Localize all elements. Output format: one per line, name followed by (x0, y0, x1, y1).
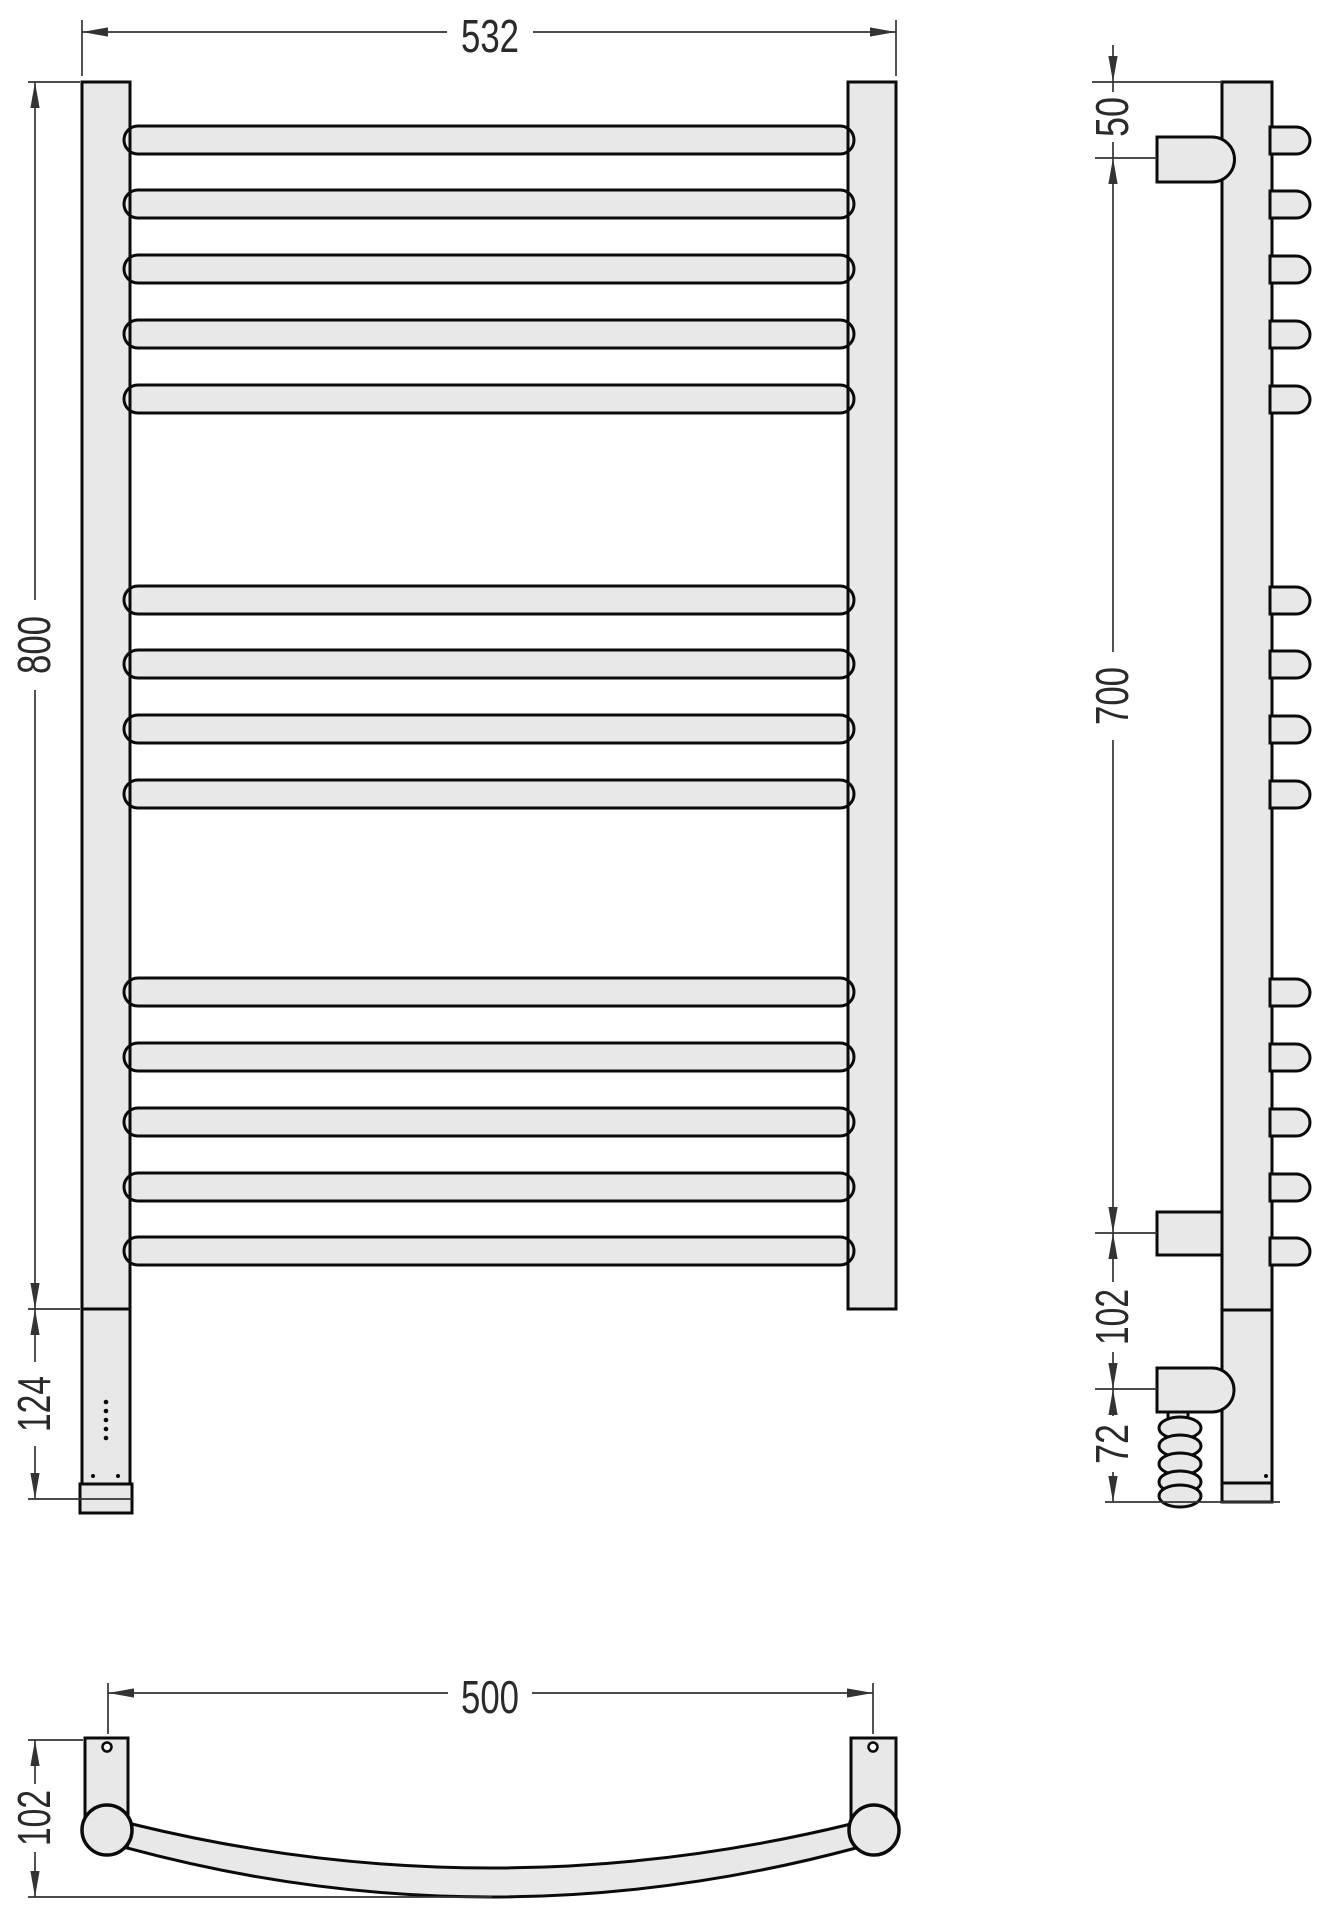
side-rung-stub (1270, 191, 1310, 218)
dimension-arrowhead (30, 1283, 39, 1309)
dimension-arrowhead (1108, 1389, 1117, 1415)
front-rung-bar (124, 780, 854, 808)
dimension-arrowhead (1108, 1207, 1117, 1233)
dimension-arrowhead (30, 1871, 39, 1897)
side-rung-stub (1270, 127, 1310, 154)
top-left-post-section (82, 1805, 132, 1855)
dim-side-lower-offset-label: 102 (1086, 1289, 1138, 1345)
dimension-arrowhead (1108, 158, 1117, 184)
dimension-arrowhead (30, 1473, 39, 1499)
front-rung-bar (124, 1043, 854, 1071)
technical-drawing-canvas: 532 800 124 50 700 102 72 500 102 (0, 0, 1337, 1920)
side-rung-stubs (1270, 127, 1310, 1265)
side-rung-stub (1270, 979, 1310, 1006)
base-dot (91, 1474, 95, 1478)
top-right-screw-hole (869, 1743, 878, 1752)
front-rungs (124, 126, 854, 1265)
dimension-arrowhead (1108, 1363, 1117, 1389)
side-view (1157, 82, 1310, 1507)
side-top-wall-bracket (1157, 137, 1235, 182)
top-right-post-section (849, 1805, 899, 1855)
vent-dot (104, 1418, 109, 1423)
side-post-bar (1222, 82, 1272, 1310)
base-dot (116, 1474, 120, 1478)
dim-side-bracket-span-label: 700 (1086, 667, 1138, 725)
top-left-screw-hole (103, 1743, 112, 1752)
top-curved-rail (127, 1824, 856, 1897)
front-rung-bar (124, 650, 854, 678)
dimension-arrowhead (1108, 1476, 1117, 1502)
side-rung-stub (1270, 1044, 1310, 1071)
vent-dot (104, 1400, 109, 1405)
cable-coil-loop (1159, 1485, 1201, 1507)
front-rung-bar (124, 255, 854, 283)
front-rung-bar (124, 385, 854, 413)
dimension-arrowhead (30, 1309, 39, 1335)
side-rung-stub (1270, 587, 1310, 614)
dim-front-extension-label: 124 (8, 1376, 60, 1432)
dimensions: 532 800 124 50 700 102 72 500 102 (8, 10, 1280, 1897)
dimension-arrows (30, 27, 1117, 1897)
front-rung-bar (124, 715, 854, 743)
side-rung-stub (1270, 716, 1310, 743)
dimension-lines (28, 20, 1280, 1897)
vent-dot (104, 1409, 109, 1414)
dim-side-top-offset-label: 50 (1086, 97, 1138, 137)
dimension-arrowhead (30, 1740, 39, 1766)
side-heater-element (1157, 1368, 1234, 1412)
dimension-arrowhead (870, 27, 896, 36)
front-rung-bar (124, 1108, 854, 1136)
side-extension-cap (1222, 1483, 1272, 1502)
dimension-arrowhead (82, 27, 108, 36)
dim-front-height-label: 800 (8, 616, 60, 674)
front-heater-housing (82, 1309, 130, 1484)
side-extension-dot (1264, 1474, 1268, 1478)
dimension-arrowhead (847, 1688, 873, 1697)
dim-side-heater-offset-label: 72 (1086, 1424, 1138, 1464)
dimension-arrowhead (1108, 56, 1117, 82)
side-bottom-wall-bracket (1157, 1212, 1222, 1255)
dimension-arrowhead (108, 1688, 134, 1697)
side-rung-stub (1270, 651, 1310, 678)
front-view (80, 82, 896, 1513)
dimension-arrowhead (30, 82, 39, 108)
vent-dot (104, 1427, 109, 1432)
side-rung-stub (1270, 1174, 1310, 1201)
front-rung-bar (124, 320, 854, 348)
top-view (82, 1738, 899, 1897)
front-rung-bar (124, 126, 854, 154)
front-rung-bar (124, 190, 854, 218)
front-rung-bar (124, 978, 854, 1006)
dim-top-mount-span-label: 500 (461, 1671, 519, 1723)
dim-front-width-label: 532 (461, 10, 519, 62)
side-cable-coil (1159, 1417, 1201, 1507)
front-rung-bar (124, 1237, 854, 1265)
side-rung-stub (1270, 781, 1310, 808)
front-rung-bar (124, 586, 854, 614)
side-rung-stub (1270, 256, 1310, 283)
dim-top-depth-label: 102 (8, 1790, 60, 1846)
side-rung-stub (1270, 1238, 1310, 1265)
side-rung-stub (1270, 386, 1310, 413)
side-rung-stub (1270, 1109, 1310, 1136)
dimension-arrowhead (1108, 1233, 1117, 1259)
towel-rail-drawing: 532 800 124 50 700 102 72 500 102 (0, 0, 1337, 1920)
front-rung-bar (124, 1173, 854, 1201)
vent-dot (104, 1436, 109, 1441)
side-rung-stub (1270, 321, 1310, 348)
